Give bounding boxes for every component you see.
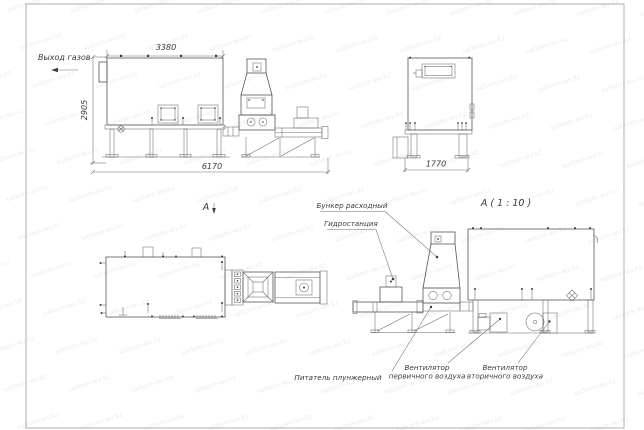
drawing-canvas: satkom-wv.kz satkom-wv.kz Выход газов 33… <box>0 0 644 430</box>
dim-1770-value: 1770 <box>426 160 446 169</box>
callout-hopper-label: Бункер расходный <box>316 201 387 210</box>
callout-hydraulic-label: Гидростанция <box>324 219 378 228</box>
drawing-sheet: satkom-wv.kz satkom-wv.kz Выход газов 33… <box>0 0 644 430</box>
view-a-label: А <box>202 202 210 213</box>
dim-6170-value: 6170 <box>202 162 222 171</box>
dim-3380-value: 3380 <box>156 43 176 52</box>
dim-2905-value: 2905 <box>80 100 89 120</box>
gas-outlet-label: Выход газов <box>38 53 91 62</box>
detail-title: А ( 1 : 10 ) <box>480 198 531 209</box>
callout-fan-secondary-line2: вторичного воздуха <box>467 372 543 381</box>
callout-fan-primary-line2: первичного воздуха <box>389 372 466 381</box>
watermark-layer <box>0 0 644 430</box>
callout-feeder-label: Питатель плунжерный <box>294 373 381 382</box>
